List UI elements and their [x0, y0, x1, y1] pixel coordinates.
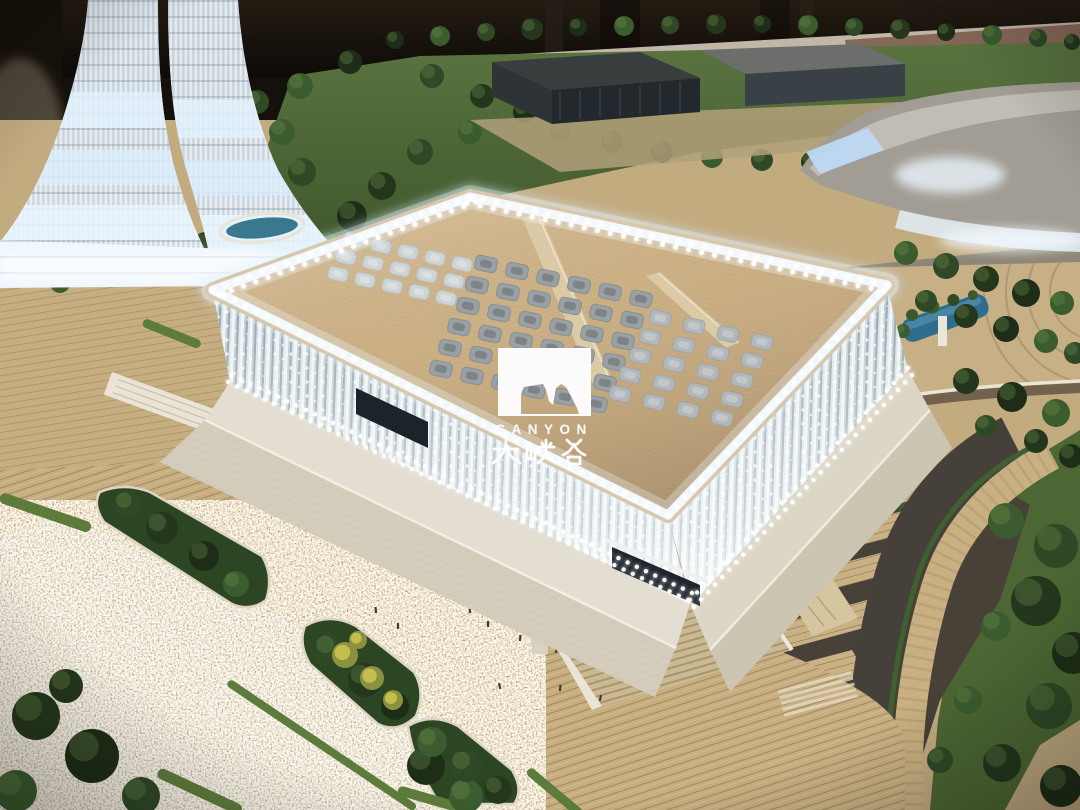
scene-svg: CANYON 大峡谷 — [0, 0, 1080, 810]
vignette — [0, 0, 1080, 810]
model-photo-canvas: CANYON 大峡谷 — [0, 0, 1080, 810]
watermark-brand-text: CANYON — [495, 422, 593, 437]
